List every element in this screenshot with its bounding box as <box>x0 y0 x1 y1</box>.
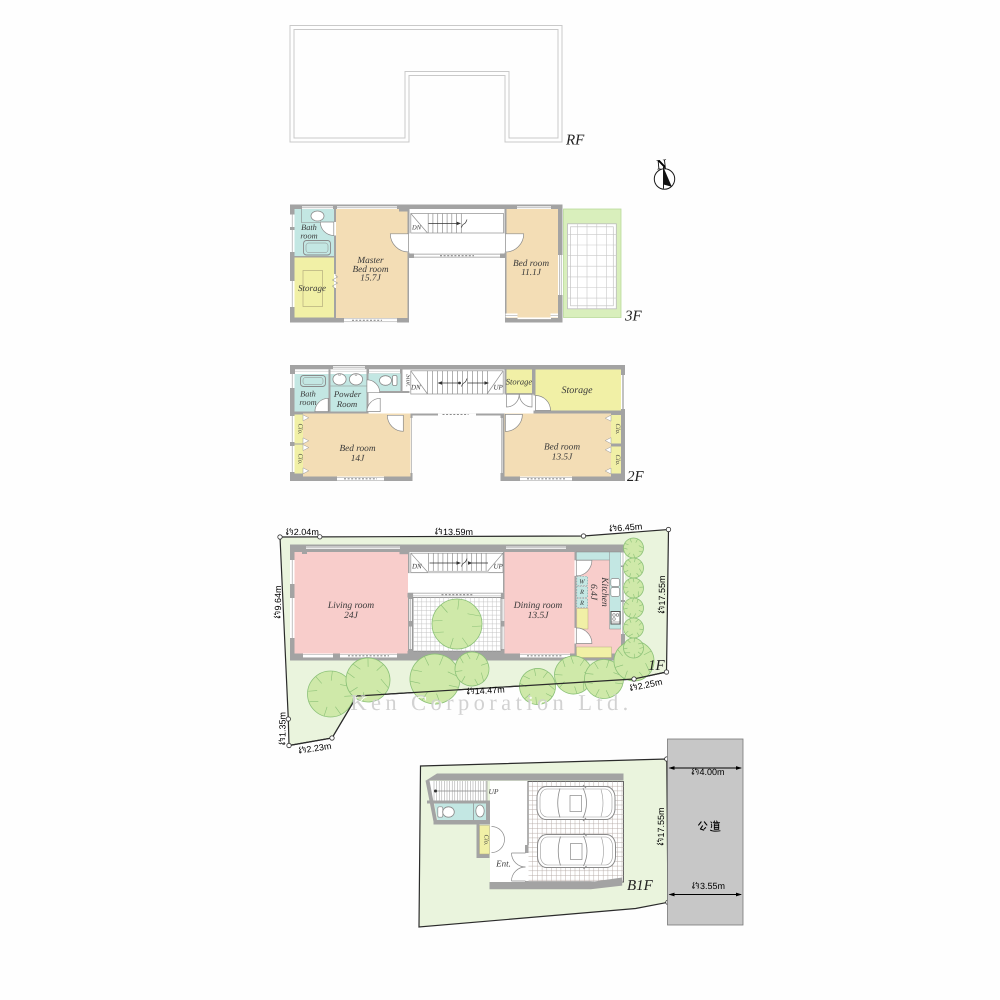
svg-text:Bed room: Bed room <box>339 444 375 454</box>
svg-text:Clo.: Clo. <box>297 423 304 434</box>
svg-text:13.5J: 13.5J <box>552 453 573 463</box>
svg-text:11.1J: 11.1J <box>521 268 542 278</box>
svg-text:1.35m: 1.35m <box>278 712 288 737</box>
svg-text:6.45m: 6.45m <box>617 521 643 533</box>
svg-text:17.55m: 17.55m <box>657 575 667 605</box>
svg-text:Storage: Storage <box>298 283 326 293</box>
svg-text:3F: 3F <box>624 309 643 325</box>
svg-text:15.7J: 15.7J <box>360 274 381 284</box>
svg-text:B1F: B1F <box>627 878 654 894</box>
svg-text:Clo.: Clo. <box>483 834 490 845</box>
svg-text:Kitchen: Kitchen <box>599 576 609 607</box>
svg-text:RF: RF <box>565 133 585 149</box>
svg-text:6.4J: 6.4J <box>588 584 598 601</box>
svg-text:13.59m: 13.59m <box>443 527 473 537</box>
svg-text:room: room <box>299 398 316 407</box>
svg-text:24J: 24J <box>344 611 359 621</box>
svg-text:1F: 1F <box>648 658 666 674</box>
svg-text:Dining room: Dining room <box>513 601 563 611</box>
svg-text:Storage: Storage <box>506 377 533 387</box>
svg-text:3.55m: 3.55m <box>700 881 725 891</box>
svg-text:UP: UP <box>494 563 504 571</box>
svg-text:Living room: Living room <box>327 601 374 611</box>
svg-text:17.55m: 17.55m <box>656 807 666 837</box>
svg-text:DN: DN <box>411 563 422 571</box>
svg-text:UP: UP <box>489 787 499 796</box>
svg-text:2F: 2F <box>627 469 645 485</box>
svg-text:Room: Room <box>336 399 358 409</box>
svg-text:Bed room: Bed room <box>544 443 580 453</box>
svg-text:Ent.: Ent. <box>495 859 511 869</box>
svg-text:DN: DN <box>411 225 422 232</box>
svg-text:Storage: Storage <box>561 385 593 396</box>
svg-text:Clo.: Clo. <box>614 454 621 465</box>
svg-text:UP: UP <box>494 384 504 392</box>
svg-text:14J: 14J <box>351 454 365 464</box>
svg-text:4.00m: 4.00m <box>700 767 725 777</box>
svg-text:9.64m: 9.64m <box>273 585 283 610</box>
svg-text:R: R <box>579 589 584 596</box>
svg-text:2.04m: 2.04m <box>294 527 319 537</box>
svg-text:room: room <box>300 232 317 241</box>
svg-text:DN: DN <box>410 384 421 392</box>
svg-text:N: N <box>656 157 668 173</box>
svg-text:Clo.: Clo. <box>614 423 621 434</box>
svg-text:W: W <box>579 579 585 586</box>
svg-text:Clo.: Clo. <box>297 453 304 464</box>
svg-text:13.5J: 13.5J <box>528 611 550 621</box>
svg-text:14.47m: 14.47m <box>474 684 505 696</box>
svg-text:R: R <box>579 600 584 607</box>
svg-text:Powder: Powder <box>333 389 362 399</box>
